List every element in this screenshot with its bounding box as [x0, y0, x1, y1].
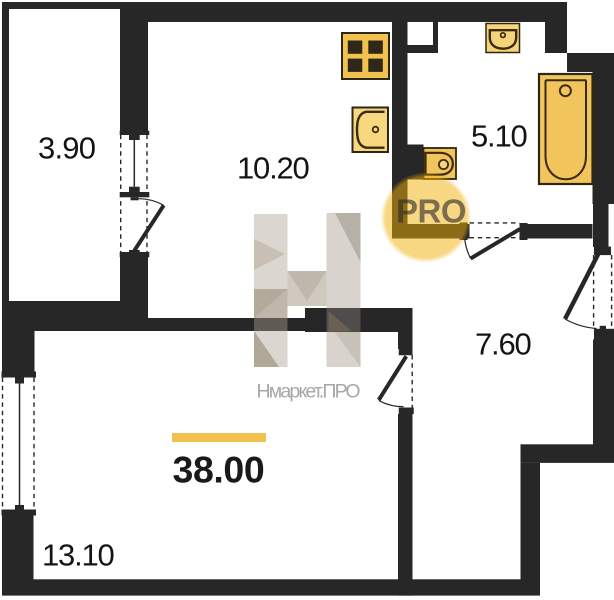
svg-text:5.10: 5.10 [471, 119, 527, 154]
svg-text:3.90: 3.90 [38, 131, 96, 166]
svg-text:PRO: PRO [396, 193, 466, 230]
svg-text:13.10: 13.10 [42, 538, 115, 573]
svg-text:38.00: 38.00 [173, 449, 265, 491]
svg-text:10.20: 10.20 [237, 151, 310, 186]
svg-text:Нмаркет.ПРО: Нмаркет.ПРО [257, 381, 361, 403]
svg-text:7.60: 7.60 [475, 327, 531, 362]
